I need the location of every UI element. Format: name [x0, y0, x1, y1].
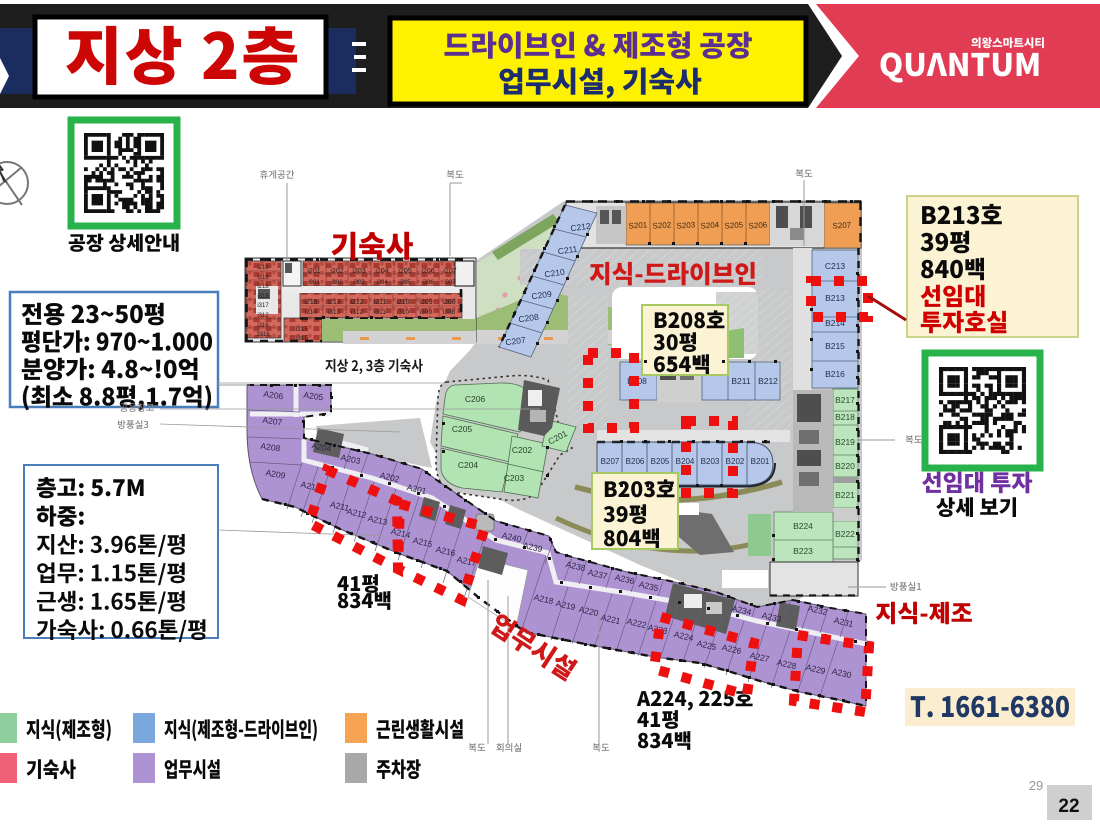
svg-text:C205: C205 [452, 424, 473, 434]
svg-text:C202: C202 [512, 445, 533, 455]
svg-text:S202: S202 [652, 220, 672, 230]
svg-text:B218: B218 [835, 412, 855, 422]
svg-text:S201: S201 [628, 220, 648, 230]
svg-text:S205: S205 [724, 220, 744, 230]
svg-text:B221: B221 [835, 490, 855, 500]
svg-text:C206: C206 [465, 394, 486, 404]
svg-text:B216: B216 [825, 369, 845, 379]
svg-text:B224: B224 [793, 521, 813, 531]
svg-text:C204: C204 [458, 460, 479, 470]
svg-text:S204: S204 [700, 220, 720, 230]
svg-text:i305: i305 [399, 280, 411, 286]
svg-text:i219: i219 [257, 265, 269, 271]
svg-text:S206: S206 [748, 220, 768, 230]
svg-text:i313: i313 [328, 309, 341, 316]
svg-text:i215: i215 [296, 326, 309, 333]
svg-text:B212: B212 [758, 376, 778, 386]
svg-text:i213: i213 [327, 299, 340, 306]
svg-text:B222: B222 [835, 529, 855, 539]
svg-text:i204: i204 [375, 268, 388, 275]
svg-text:i306: i306 [422, 280, 434, 286]
svg-text:i218: i218 [257, 284, 269, 290]
svg-text:i315: i315 [296, 335, 309, 342]
svg-text:i308: i308 [443, 309, 456, 316]
svg-text:B207: B207 [601, 457, 620, 466]
svg-text:S203: S203 [676, 220, 696, 230]
svg-text:B202: B202 [726, 457, 745, 466]
svg-text:B215: B215 [825, 341, 845, 351]
svg-text:i319: i319 [257, 275, 269, 281]
svg-text:i304: i304 [376, 280, 388, 286]
svg-text:i210: i210 [396, 299, 409, 306]
svg-text:i317: i317 [257, 303, 269, 309]
svg-text:i303: i303 [353, 280, 365, 286]
svg-text:B203: B203 [701, 457, 720, 466]
svg-text:i209: i209 [419, 299, 432, 306]
svg-text:B204: B204 [676, 457, 695, 466]
svg-text:i302: i302 [331, 280, 343, 286]
svg-text:B206: B206 [626, 457, 645, 466]
svg-text:C213: C213 [825, 261, 846, 271]
svg-text:i314: i314 [305, 309, 318, 316]
svg-text:i312: i312 [257, 313, 269, 319]
svg-text:i216: i216 [304, 299, 317, 306]
svg-text:i207: i207 [443, 268, 456, 275]
svg-text:i312: i312 [351, 309, 364, 316]
svg-text:22: 22 [1058, 796, 1079, 817]
svg-text:i307: i307 [444, 280, 456, 286]
svg-text:i202: i202 [330, 268, 343, 275]
svg-text:i206: i206 [421, 268, 434, 275]
svg-text:B223: B223 [793, 546, 813, 556]
svg-text:i211: i211 [374, 299, 387, 306]
svg-text:29: 29 [1029, 778, 1043, 793]
svg-text:i309: i309 [420, 309, 433, 316]
svg-text:i203: i203 [352, 268, 365, 275]
svg-text:i212: i212 [350, 299, 363, 306]
svg-text:i201: i201 [307, 268, 320, 275]
svg-text:B201: B201 [751, 457, 770, 466]
svg-text:B211: B211 [731, 376, 750, 386]
svg-text:S207: S207 [832, 220, 852, 230]
svg-text:B213: B213 [825, 293, 845, 303]
svg-text:B220: B220 [835, 461, 855, 471]
svg-text:i311: i311 [374, 309, 386, 316]
svg-text:i208: i208 [442, 299, 455, 306]
svg-text:C203: C203 [504, 473, 525, 483]
svg-text:B205: B205 [651, 457, 670, 466]
svg-text:i318: i318 [257, 294, 269, 300]
svg-text:B219: B219 [835, 437, 855, 447]
svg-text:B217: B217 [835, 395, 855, 405]
svg-text:i310: i310 [397, 309, 410, 316]
svg-text:3316: 3316 [256, 332, 270, 338]
svg-text:i301: i301 [308, 280, 320, 286]
svg-text:i205: i205 [398, 268, 411, 275]
svg-text:i216: i216 [257, 323, 269, 329]
